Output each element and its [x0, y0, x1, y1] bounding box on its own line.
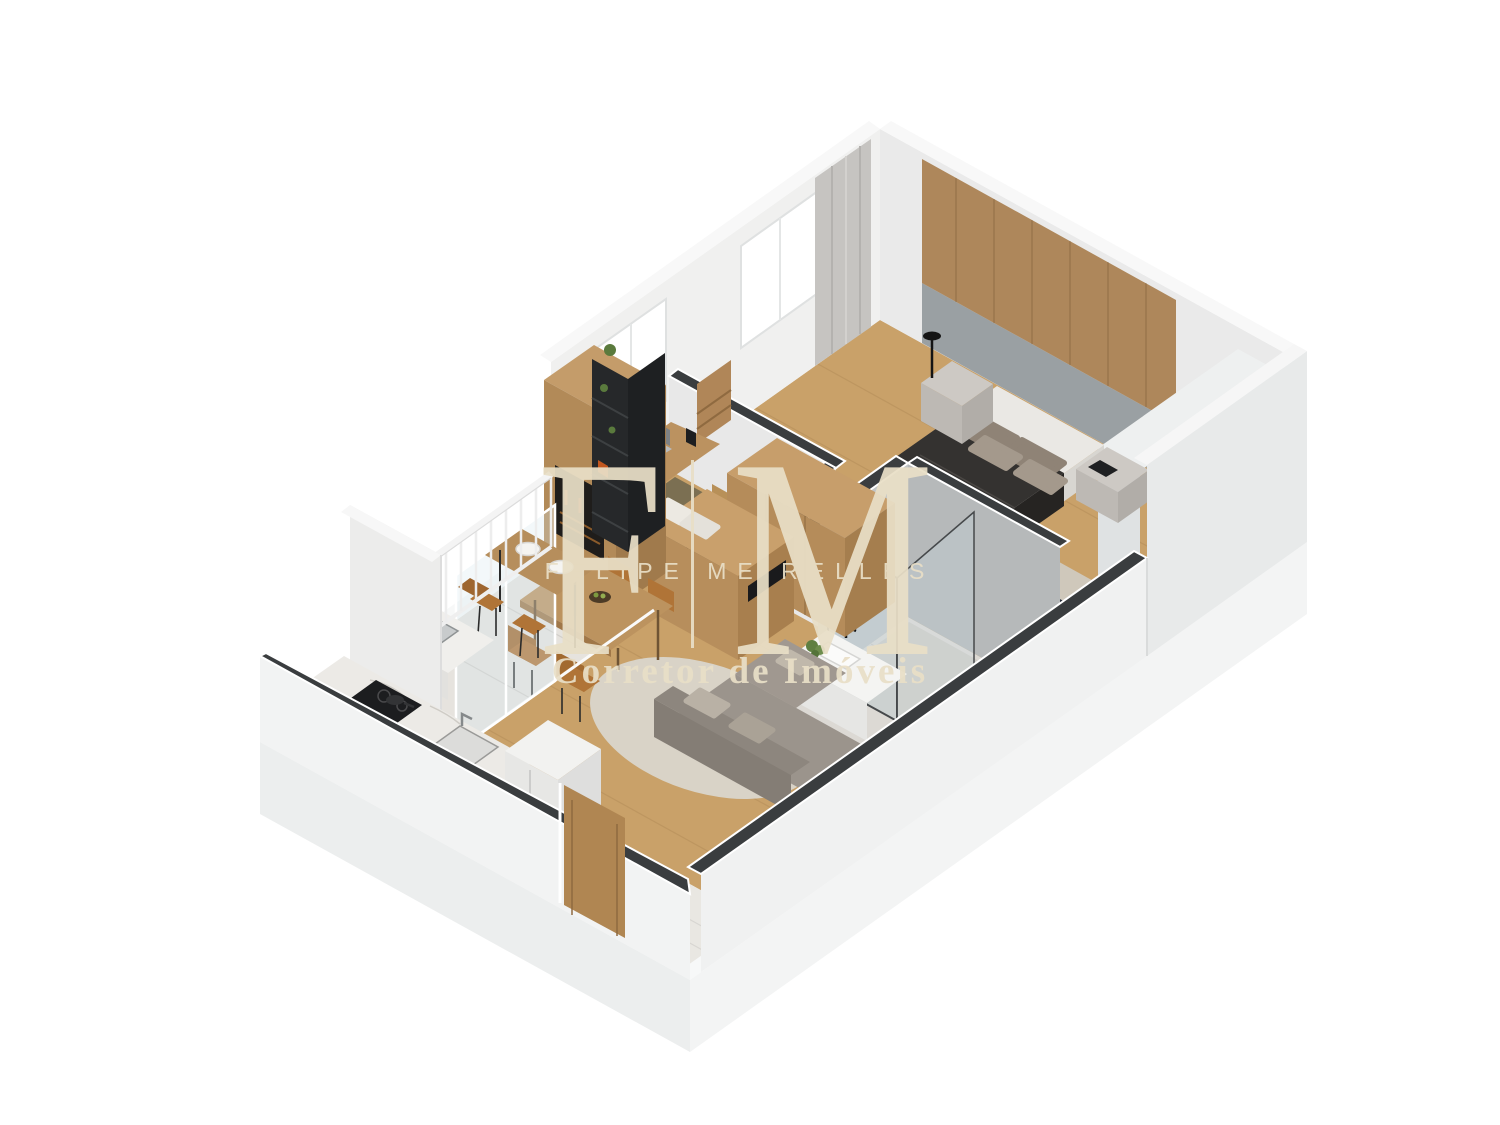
fruit-bowl [589, 591, 611, 603]
floorplan-render-page: F M FELIPE MEIRELLES Corretor de Imóveis [0, 0, 1500, 1125]
bedroom-curtain [815, 139, 871, 366]
shelf-plant [600, 384, 608, 392]
plate [549, 561, 573, 574]
apartment-3d-floorplan [0, 0, 1500, 1125]
pan [386, 695, 404, 705]
